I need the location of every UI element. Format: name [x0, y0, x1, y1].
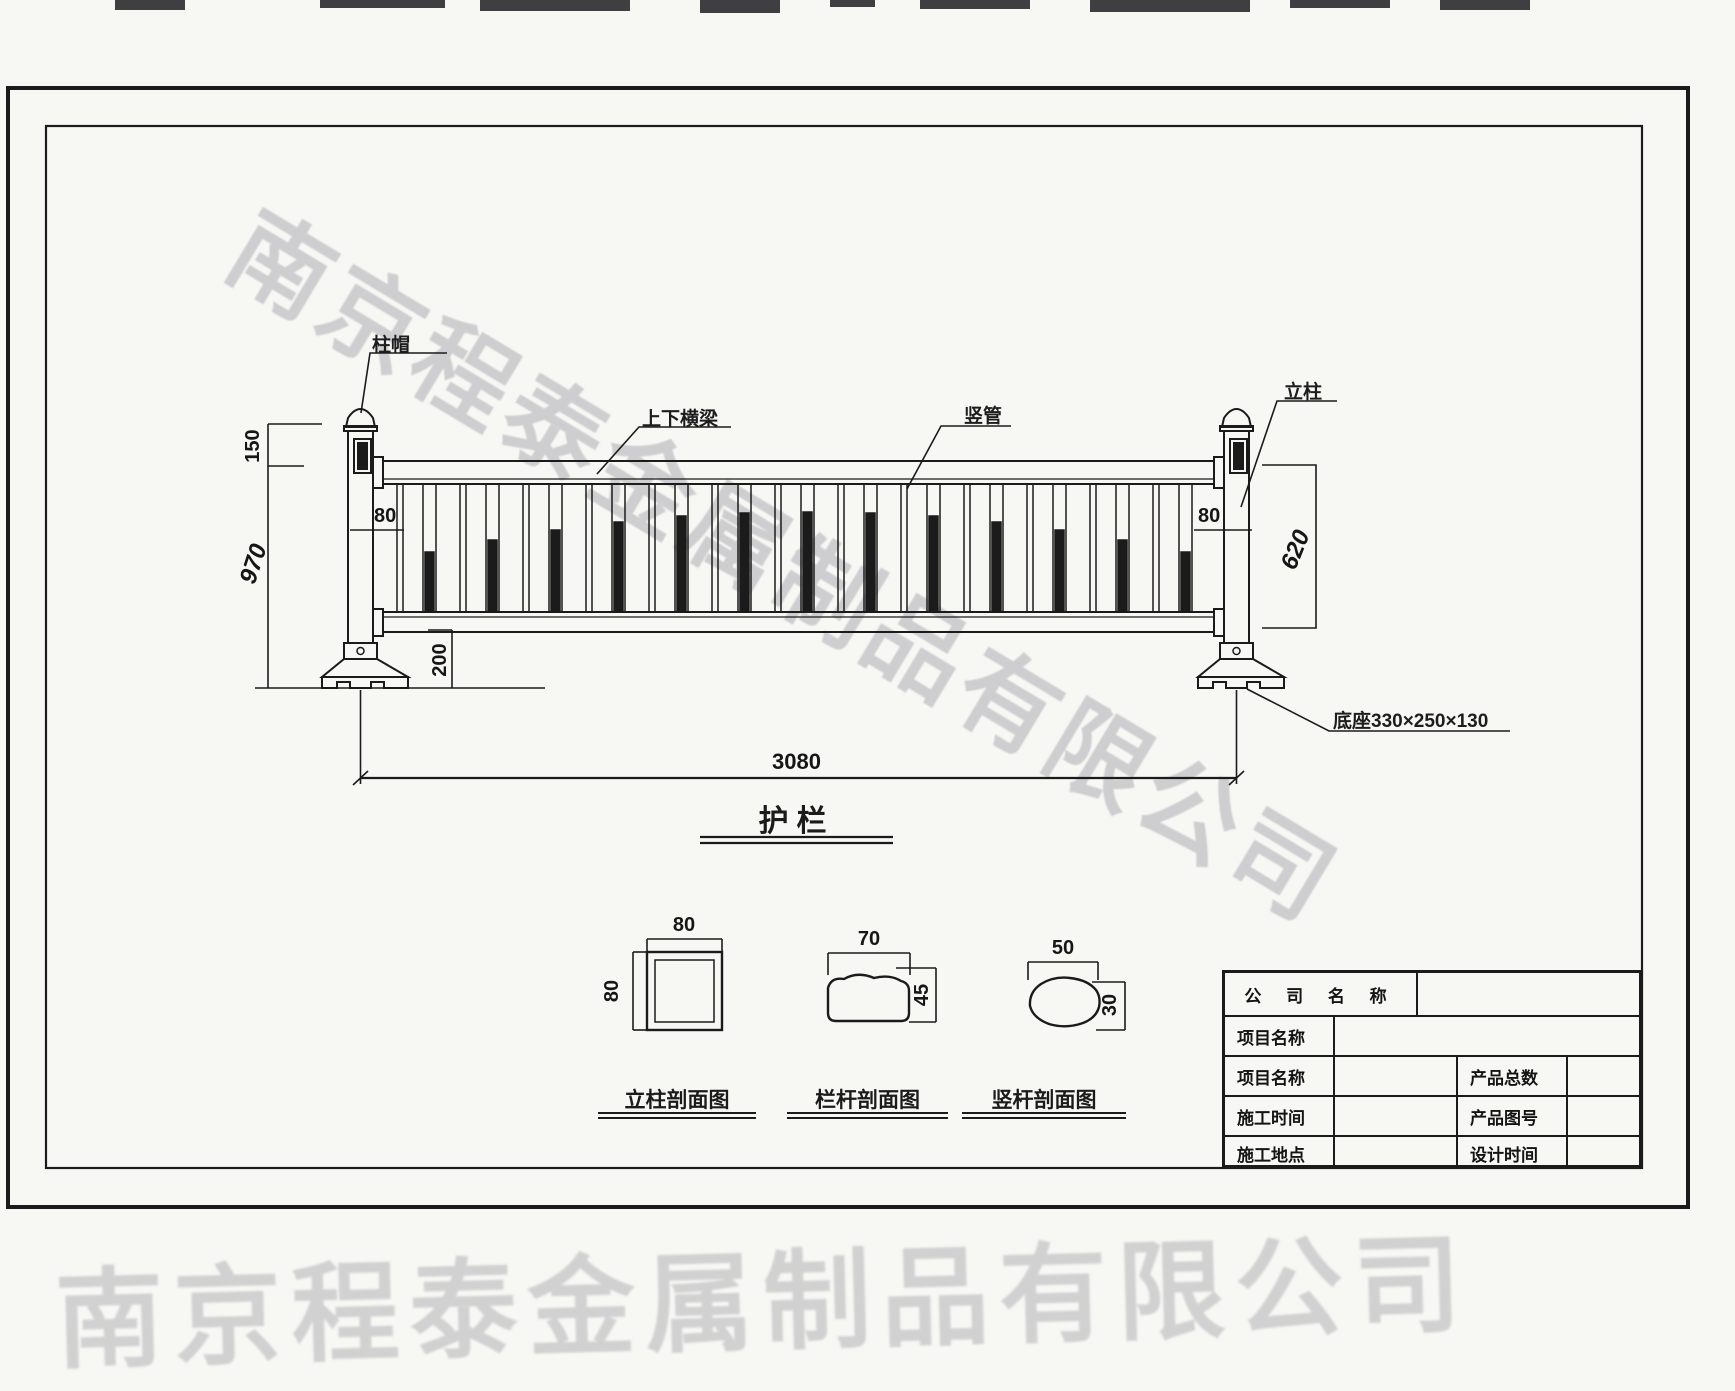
product-total-label: 产品总数: [1458, 1057, 1568, 1095]
bottom-rail: [373, 609, 1224, 636]
section-rail-height: 45: [899, 972, 945, 1018]
section-title-post: 立柱剖面图: [598, 1084, 756, 1114]
design-time-label: 设计时间: [1458, 1137, 1568, 1169]
project-name2-label: 项目名称: [1225, 1057, 1335, 1095]
base-size-label: 底座330×250×130: [1333, 706, 1488, 733]
scanned-engineering-drawing: { "watermark": { "text": "南京程泰金属制品有限公司" …: [0, 0, 1735, 1279]
project-name2-value: [1335, 1057, 1458, 1095]
title-block-row: 施工地点 设计时间: [1225, 1135, 1639, 1169]
company-name-label: 公 司 名 称: [1225, 973, 1418, 1015]
build-time-label: 施工时间: [1225, 1097, 1335, 1135]
post-cap-label: 柱帽: [372, 330, 410, 357]
post-label: 立柱: [1284, 377, 1322, 404]
beams-label: 上下横梁: [642, 404, 718, 431]
section-post-height: 80: [589, 968, 635, 1014]
section-rail-width: 70: [849, 928, 889, 951]
section-bar-width: 50: [1043, 937, 1083, 960]
build-site-value: [1335, 1137, 1458, 1169]
title-block-row: 施工时间 产品图号: [1225, 1095, 1639, 1135]
drawing-title: 护栏: [700, 796, 893, 840]
product-no-value: [1568, 1097, 1639, 1135]
dim-80-right: 80: [1198, 505, 1220, 528]
fence-elevation: [322, 409, 1284, 688]
company-name-value: [1418, 973, 1639, 1015]
title-block: 公 司 名 称 项目名称 项目名称 产品总数 施工时间 产品图号 施工地点 设计…: [1222, 970, 1642, 1168]
design-time-value: [1568, 1137, 1639, 1169]
build-site-label: 施工地点: [1225, 1137, 1335, 1169]
vertical-tubes: [397, 484, 1192, 612]
section-title-rail: 栏杆剖面图: [787, 1084, 948, 1114]
project-name-value: [1335, 1017, 1639, 1055]
section-title-bar: 竖杆剖面图: [962, 1084, 1126, 1114]
title-block-row: 项目名称: [1225, 1015, 1639, 1055]
project-name-label: 项目名称: [1225, 1017, 1335, 1055]
product-no-label: 产品图号: [1458, 1097, 1568, 1135]
post-section-view: [633, 939, 722, 1030]
dimension-lines: [255, 424, 1316, 785]
section-post-width: 80: [664, 914, 704, 937]
dim-200: 200: [417, 637, 463, 683]
title-block-row: 公 司 名 称: [1225, 973, 1639, 1015]
dim-80-left: 80: [374, 505, 396, 528]
section-bar-height: 30: [1087, 982, 1133, 1028]
product-total-value: [1568, 1057, 1639, 1095]
build-time-value: [1335, 1097, 1458, 1135]
title-block-row: 项目名称 产品总数: [1225, 1055, 1639, 1095]
vertical-tube-label: 竖管: [964, 401, 1002, 428]
dim-3080: 3080: [772, 749, 821, 775]
left-post: [322, 409, 408, 688]
dim-150: 150: [230, 423, 276, 469]
